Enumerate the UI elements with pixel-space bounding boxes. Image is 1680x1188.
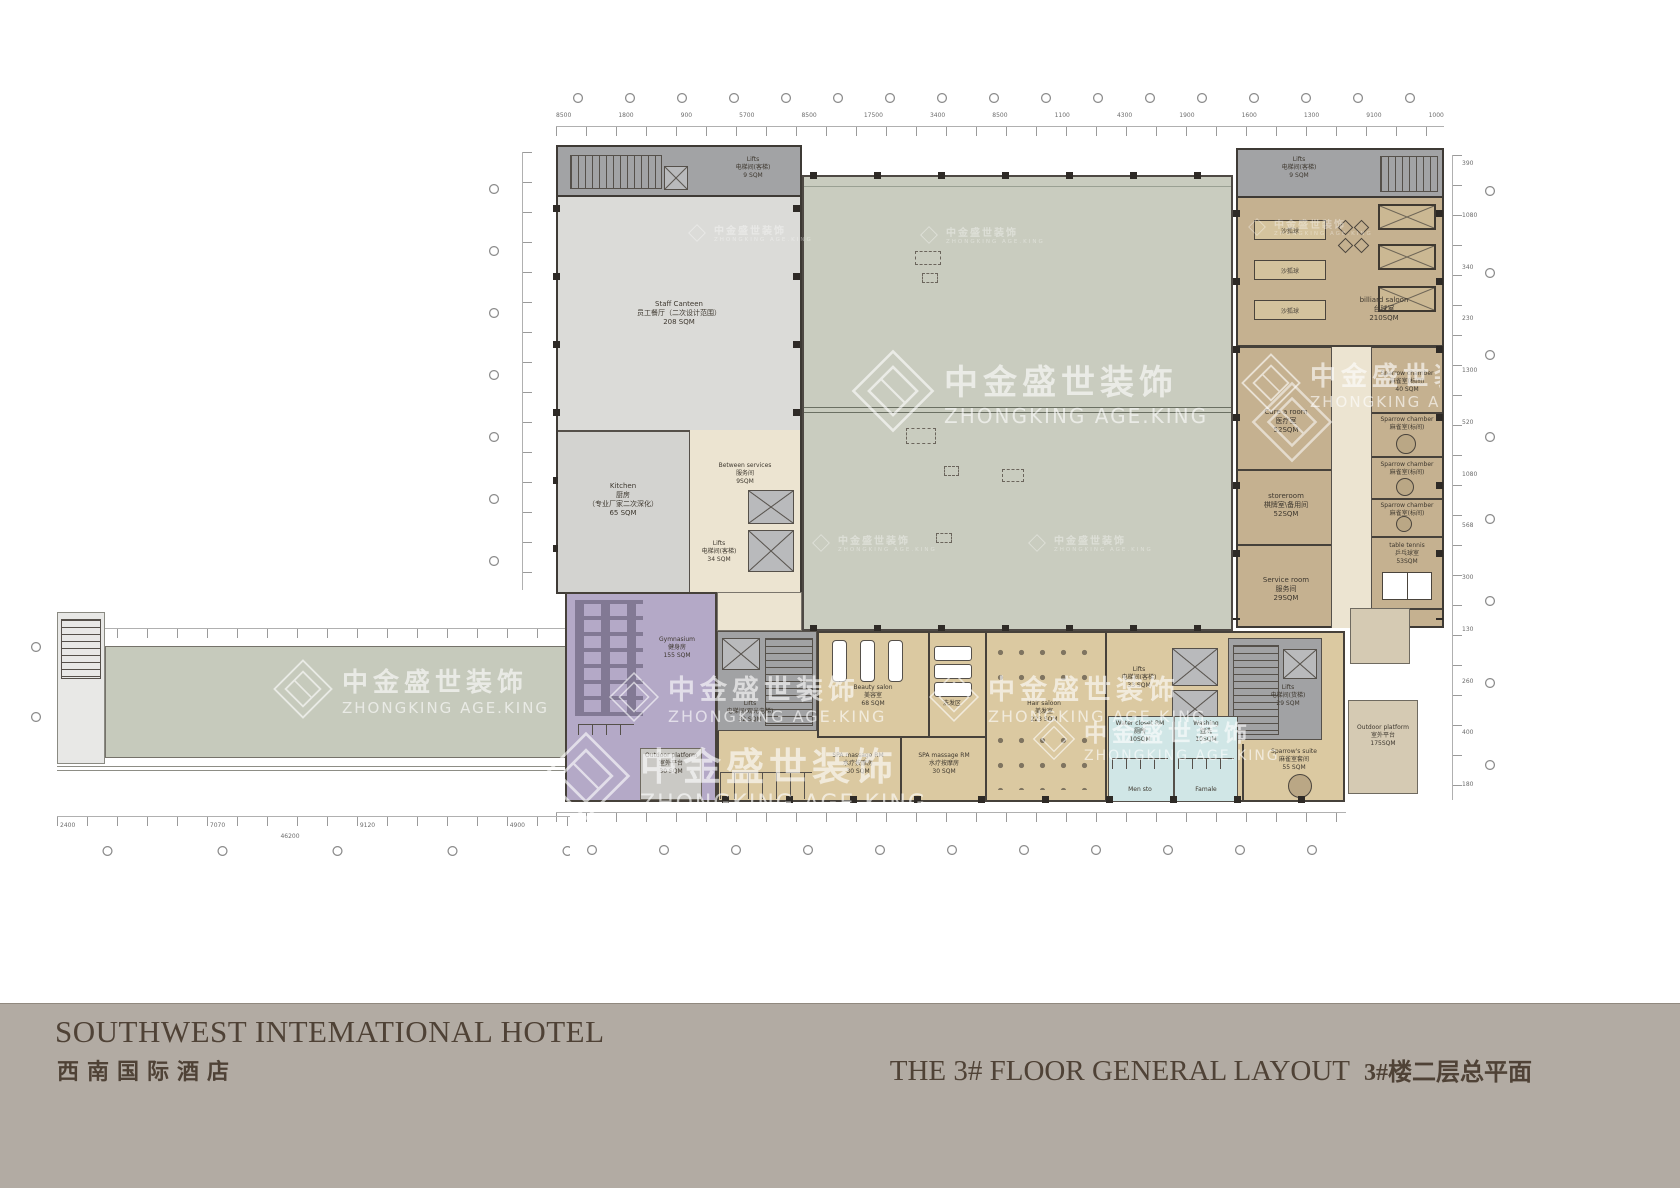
dim: 1080 [1462, 471, 1477, 478]
room-area: 30 SQM [640, 768, 702, 776]
room-area: 175SQM [1349, 740, 1417, 748]
room-label-sparrow-chamber: Sparrow chamber 麻雀室(标间) 40 SQM [1374, 370, 1440, 393]
room-area: 29SQM [1243, 594, 1329, 603]
massage-bed [888, 640, 903, 682]
hairwash-bed [934, 682, 972, 697]
room-label-men-store: Men sto [1112, 786, 1168, 794]
room-name-en: storeroom [1243, 492, 1329, 501]
dim: 1080 [1462, 212, 1477, 219]
room-area: 9 SQM [1256, 172, 1342, 180]
dim: 568 [1462, 522, 1473, 529]
room-area: 9 SQM [712, 172, 794, 180]
dim: 7070 [210, 822, 225, 829]
wing-corridor [1331, 347, 1372, 628]
room-label-service-room: Service room 服务间 29SQM [1243, 576, 1329, 603]
stairs-icon [61, 619, 101, 679]
room-name-en: Gymnasium [640, 636, 714, 644]
room-label-outdoor-platform-right: Outdoor platform 室外平台 175SQM [1349, 724, 1417, 747]
room-name-cn: 室外平台 [1349, 732, 1417, 740]
dim: 230 [1462, 315, 1473, 322]
mahjong-table [1396, 516, 1412, 532]
dim: 340 [1462, 264, 1473, 271]
skylight-opening [922, 273, 938, 283]
room-area: 68 SQM [828, 700, 918, 708]
lift-shaft-icon [664, 166, 688, 190]
room-name-en: Famale [1178, 786, 1234, 794]
dim: 2400 [60, 822, 75, 829]
room-area: 40 SQM [1374, 386, 1440, 394]
room-name-en: Sparrow chamber [1374, 370, 1440, 378]
dim: 1300 [1304, 112, 1319, 119]
axis-bubbles-bottom [556, 844, 1348, 856]
room-label-between-services: Between services 服务间 9SQM [692, 462, 798, 485]
room-area: 30 SQM [904, 768, 984, 776]
dim: 17500 [864, 112, 883, 119]
room-area: 10SQM [1175, 736, 1237, 744]
room-name-en: Cure a room [1243, 408, 1329, 417]
room-name-en: Between services [692, 462, 798, 470]
hotel-name-cn: 西南国际酒店 [57, 1054, 237, 1086]
styling-chairs [990, 640, 1102, 696]
dimension-ticks-right [1452, 155, 1462, 800]
room-name-cn: 厕所 [1109, 728, 1171, 736]
room-name-en: Lifts [1108, 666, 1170, 674]
floorplan-sheet: 8500180090057008500175003400850011004300… [0, 0, 1680, 1188]
dim: 1600 [1242, 112, 1257, 119]
outset-platform [1350, 608, 1410, 664]
room-label-lifts-canteen: Lifts 电梯间(客梯) 34 SQM [690, 540, 748, 563]
room-name-cn: 员工餐厅（二次设计范围） [609, 309, 749, 318]
room-name-cn: 台球室 [1332, 305, 1436, 314]
room-label-lifts-top-right: Lifts 电梯间(客梯) 9 SQM [1256, 156, 1342, 179]
wall [1372, 456, 1442, 458]
room-area: 223 SQM [1000, 716, 1088, 724]
room-area: 10SQM [1109, 736, 1171, 744]
room-name-cn: 美容室 [828, 692, 918, 700]
hairwash-bed [934, 646, 972, 661]
room-name-cn: 厨房 [562, 491, 684, 500]
room-area: 52SQM [1243, 426, 1329, 435]
lift-shaft-icon [722, 638, 760, 670]
room-label-hair-wash: 洗发区 [930, 700, 974, 708]
dimension-numbers-bridge: 2400707091204900 [60, 822, 525, 829]
dim: 9100 [1366, 112, 1381, 119]
column-row [1233, 210, 1240, 620]
bridge-lower-edge [57, 766, 570, 771]
shower-stalls [578, 724, 634, 735]
corridor-notch [717, 592, 802, 631]
shuffleboard-label: 沙狐球 [1281, 226, 1299, 235]
wall [817, 736, 987, 738]
dim: 4900 [510, 822, 525, 829]
lift-shaft-icon [748, 530, 794, 572]
room-label-sparrow-chamber: Sparrow chamber 麻雀室(标间) [1374, 502, 1440, 518]
room-label-storeroom: storeroom 棋牌室\备用间 52SQM [1243, 492, 1329, 519]
room-area: 34 SQM [690, 556, 748, 564]
shuffleboard-table: 沙狐球 [1254, 220, 1326, 240]
axis-bubbles-right [1484, 150, 1496, 806]
wall [1238, 469, 1331, 471]
skylight-opening [906, 428, 936, 444]
toilet-stalls [1178, 758, 1234, 769]
mahjong-table [1396, 478, 1414, 496]
dim: 5700 [739, 112, 754, 119]
wall [985, 631, 987, 802]
room-label-lifts-freight: Lifts 电梯间(货梯) 29 SQM [1256, 684, 1320, 707]
room-name-en: Hair saloon [1000, 700, 1088, 708]
room-name-cn: 医疗室 [1243, 417, 1329, 426]
billiard-table [1378, 244, 1436, 270]
axis-bubbles-bridge [50, 845, 570, 857]
dim: 1900 [1179, 112, 1194, 119]
dim: 390 [1462, 160, 1473, 167]
skylight-opening [1002, 469, 1024, 482]
room-label-lifts-top-left: Lifts 电梯间(客梯) 9 SQM [712, 156, 794, 179]
dim: 130 [1462, 626, 1473, 633]
lift-shaft-icon [1172, 648, 1218, 686]
room-label-lifts-guest: Lifts 电梯间(客梯) 33 SQM [1108, 666, 1170, 689]
room-name-cn: 乒乓球室 [1374, 550, 1440, 558]
room-name-cn: 室外平台 [640, 760, 702, 768]
massage-bed [832, 640, 847, 682]
mahjong-table [1396, 434, 1416, 454]
wall [1372, 412, 1442, 414]
room-area: 32 SQM [714, 716, 786, 724]
room-name-cn: 麻雀室(标间) [1374, 424, 1440, 432]
room-area: 9SQM [692, 478, 798, 486]
mahjong-table [1288, 774, 1312, 798]
drawing-title-cn: 3#楼二层总平面 [1364, 1052, 1532, 1087]
room-label-outdoor-platform-left: Outdoor platform 室外平台 30 SQM [640, 752, 702, 775]
room-name-en: Water closet RM [1109, 720, 1171, 728]
dimension-ticks-top [556, 126, 1444, 136]
room-name-en: Kitchen [562, 482, 684, 491]
drawing-title: THE 3# FLOOR GENERAL LAYOUT 3#楼二层总平面 [890, 1052, 1532, 1088]
room-name-en: Lifts [1256, 156, 1342, 164]
dim: 400 [1462, 729, 1473, 736]
dim: 8500 [556, 112, 571, 119]
dimension-numbers-top: 8500180090057008500175003400850011004300… [556, 112, 1444, 119]
room-name-en: Washing [1175, 720, 1237, 728]
column-row [722, 796, 1338, 803]
room-area: 53SQM [1374, 558, 1440, 566]
lift-shaft-icon [748, 490, 794, 524]
room-name-cn: 服务间 [692, 470, 798, 478]
room-name-cn: 健身房 [640, 644, 714, 652]
room-name-en: SPA massage RM [818, 752, 898, 760]
wall [1242, 744, 1244, 802]
room-name-en: table tennis [1374, 542, 1440, 550]
column-row [810, 172, 1226, 179]
room-name-en: Lifts [712, 156, 794, 164]
table-tennis-table [1382, 572, 1432, 600]
bridge-corridor [105, 646, 570, 758]
dim: 300 [1462, 574, 1473, 581]
room-name-cn: 麻雀室(标间) [1374, 510, 1440, 518]
room-name-en: Sparrow chamber [1374, 502, 1440, 510]
hairwash-bed [934, 664, 972, 679]
room-name-cn: 电梯间(观光电梯) [714, 708, 786, 716]
room-name-cn: 水疗按摩房 [818, 760, 898, 768]
room-name-cn: 电梯间(货梯) [1256, 692, 1320, 700]
room-label-water-closet: Water closet RM 厕所 10SQM [1109, 720, 1171, 743]
room-name-en: Lifts [714, 700, 786, 708]
room-label-washing: Washing 盥洗 10SQM [1175, 720, 1237, 743]
skylight-opening [915, 251, 941, 265]
dimension-ticks-bridge-top [57, 628, 570, 638]
dim: 1000 [1429, 112, 1444, 119]
room-label-staff-canteen: Staff Canteen 员工餐厅（二次设计范围） 208 SQM [609, 300, 749, 327]
hotel-name-en: SOUTHWEST INTEMATIONAL HOTEL [55, 1014, 605, 1050]
dim: 9120 [360, 822, 375, 829]
room-label-gymnasium: Gymnasium 健身房 155 SQM [640, 636, 714, 659]
dim: 260 [1462, 678, 1473, 685]
stairs-icon [1380, 156, 1438, 192]
gym-equipment [575, 600, 643, 716]
room-label-kitchen: Kitchen 厨房 （专业厂家二次深化） 65 SQM [562, 482, 684, 518]
axis-bubbles-far-left [30, 612, 42, 762]
dim: 900 [681, 112, 692, 119]
room-area: 210SQM [1332, 314, 1436, 323]
room-name-cn: 麻雀室套间 [1246, 756, 1342, 764]
room-label-sparrow-chamber: Sparrow chamber 麻雀室(标间) [1374, 416, 1440, 432]
skylight-opening [944, 466, 959, 476]
room-name-cn: 棋牌室\备用间 [1243, 501, 1329, 510]
column-row [793, 205, 800, 425]
room-label-hair-saloon: Hair saloon 美发室 223 SQM [1000, 700, 1088, 723]
dimension-numbers-right: 3901080340230130052010805683001302604001… [1462, 160, 1477, 788]
room-name-en: Service room [1243, 576, 1329, 585]
room-note: （专业厂家二次深化） [562, 500, 684, 509]
styling-chairs [990, 728, 1102, 790]
room-name-cn: 盥洗 [1175, 728, 1237, 736]
room-area: 33 SQM [1108, 682, 1170, 690]
room-name-en: Outdoor platform [640, 752, 702, 760]
room-name-en: Lifts [690, 540, 748, 548]
toilet-stalls [720, 772, 812, 799]
room-area: 30 SQM [818, 768, 898, 776]
dim: 3400 [930, 112, 945, 119]
dim: 1100 [1055, 112, 1070, 119]
room-name-cn: 洗发区 [930, 700, 974, 708]
room-name-cn: 电梯间(客梯) [1108, 674, 1170, 682]
dim: 180 [1462, 781, 1473, 788]
central-hall [802, 175, 1233, 631]
room-label-sparrow-chamber: Sparrow chamber 麻雀室(标间) [1374, 461, 1440, 477]
room-name-cn: 水疗按摩房 [904, 760, 984, 768]
room-label-female: Famale [1178, 786, 1234, 794]
room-name-en: billiard saloon [1332, 296, 1436, 305]
title-bar: SOUTHWEST INTEMATIONAL HOTEL 西南国际酒店 THE … [0, 1003, 1680, 1188]
bridge-stair-block [57, 612, 105, 764]
dim: 1800 [618, 112, 633, 119]
stairs-icon [570, 155, 662, 189]
massage-bed [860, 640, 875, 682]
wall [817, 631, 819, 736]
shuffleboard-label: 沙狐球 [1281, 266, 1299, 275]
net-line [1407, 573, 1408, 599]
room-label-spa-massage: SPA massage RM 水疗按摩房 30 SQM [818, 752, 898, 775]
room-area: 155 SQM [640, 652, 714, 660]
toilet-stalls [1112, 758, 1168, 769]
hall-inner-line [804, 186, 1231, 187]
dimension-ticks-bottom [556, 812, 1346, 822]
wall [900, 738, 902, 802]
axis-bubbles-top [552, 92, 1448, 104]
hall-divider [804, 407, 1231, 413]
dim: 8500 [992, 112, 1007, 119]
dim: 8500 [801, 112, 816, 119]
room-name-cn: 电梯间(客梯) [690, 548, 748, 556]
room-area: 55 SQM [1246, 764, 1342, 772]
room-label-cure-room: Cure a room 医疗室 52SQM [1243, 408, 1329, 435]
room-area: 29 SQM [1256, 700, 1320, 708]
room-label-spa-massage: SPA massage RM 水疗按摩房 30 SQM [904, 752, 984, 775]
lift-shaft-icon [1283, 649, 1317, 679]
room-name-en: Sparrow chamber [1374, 416, 1440, 424]
dim: 4300 [1117, 112, 1132, 119]
room-name-en: Staff Canteen [609, 300, 749, 309]
room-name-en: Sparrow's suite [1246, 748, 1342, 756]
wall [1105, 631, 1107, 802]
dimension-ticks-left [522, 152, 532, 590]
wall [928, 631, 930, 736]
billiard-table [1378, 204, 1436, 230]
room-name-cn: 麻雀室(标间) [1374, 378, 1440, 386]
room-name-cn: 服务间 [1243, 585, 1329, 594]
room-label-billiard: billiard saloon 台球室 210SQM [1332, 296, 1436, 323]
room-label-table-tennis: table tennis 乒乓球室 53SQM [1374, 542, 1440, 565]
wall [1238, 544, 1331, 546]
room-name-en: Lifts [1256, 684, 1320, 692]
shuffleboard-label: 沙狐球 [1281, 306, 1299, 315]
room-label-lifts-sight: Lifts 电梯间(观光电梯) 32 SQM [714, 700, 786, 723]
shuffleboard-table: 沙狐球 [1254, 260, 1326, 280]
room-name-cn: 麻雀室(标间) [1374, 469, 1440, 477]
dim: 520 [1462, 419, 1473, 426]
room-name-en: Men sto [1112, 786, 1168, 794]
room-name-en: Outdoor platform [1349, 724, 1417, 732]
drawing-title-en: THE 3# FLOOR GENERAL LAYOUT [890, 1055, 1350, 1088]
wall [1372, 536, 1442, 538]
wall [1372, 498, 1442, 500]
room-area: 52SQM [1243, 510, 1329, 519]
room-name-cn: 美发室 [1000, 708, 1088, 716]
room-label-sparrow-suite: Sparrow's suite 麻雀室套间 55 SQM [1246, 748, 1342, 771]
room-name-en: Sparrow chamber [1374, 461, 1440, 469]
room-name-cn: 电梯间(客梯) [1256, 164, 1342, 172]
room-area: 208 SQM [609, 318, 749, 327]
shuffleboard-table: 沙狐球 [1254, 300, 1326, 320]
room-name-en: Beauty salon [828, 684, 918, 692]
room-name-cn: 电梯间(客梯) [712, 164, 794, 172]
dimension-total: 46200 [200, 833, 380, 840]
room-label-beauty-salon: Beauty salon 美容室 68 SQM [828, 684, 918, 707]
skylight-opening [936, 533, 952, 543]
room-area: 65 SQM [562, 509, 684, 518]
room-name-en: SPA massage RM [904, 752, 984, 760]
dim: 1300 [1462, 367, 1477, 374]
axis-bubbles-left [488, 158, 500, 594]
